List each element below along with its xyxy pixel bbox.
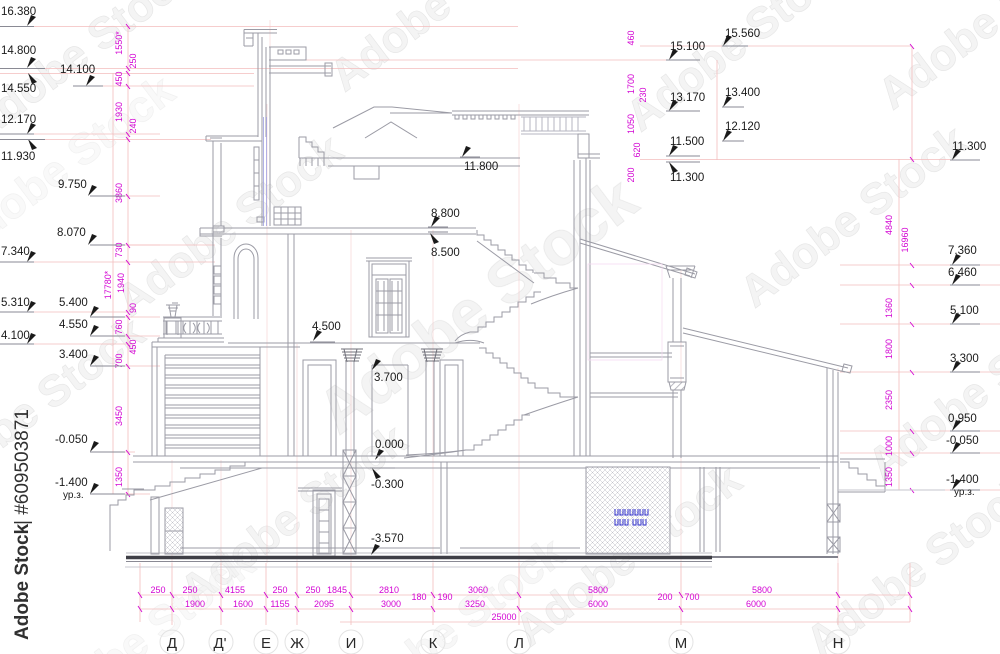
svg-text:12.170: 12.170: [1, 114, 36, 126]
svg-text:4840: 4840: [884, 215, 894, 235]
svg-text:13.170: 13.170: [670, 92, 705, 104]
svg-text:16960: 16960: [900, 227, 910, 252]
svg-text:0.950: 0.950: [948, 413, 977, 425]
svg-text:И: И: [346, 635, 357, 652]
svg-text:1700: 1700: [626, 74, 636, 94]
svg-text:5.100: 5.100: [950, 305, 979, 317]
svg-text:11.300: 11.300: [670, 172, 704, 184]
svg-text:4.500: 4.500: [312, 321, 341, 333]
svg-text:17780*: 17780*: [103, 270, 113, 299]
svg-text:15.100: 15.100: [670, 41, 705, 53]
svg-text:11.500: 11.500: [670, 136, 704, 148]
svg-text:1050: 1050: [626, 114, 636, 134]
svg-text:1930: 1930: [114, 102, 124, 122]
svg-text:3.400: 3.400: [59, 349, 88, 361]
svg-text:16.380: 16.380: [1, 6, 36, 18]
svg-text:-0.050: -0.050: [55, 434, 88, 446]
svg-text:| #609503871: | #609503871: [12, 409, 33, 525]
svg-text:6.460: 6.460: [948, 267, 977, 279]
svg-text:-1.400: -1.400: [946, 474, 979, 486]
svg-text:1155: 1155: [270, 599, 289, 609]
svg-text:7.360: 7.360: [948, 245, 977, 257]
svg-text:250: 250: [128, 53, 138, 68]
svg-text:1360: 1360: [884, 298, 894, 318]
svg-text:3250: 3250: [465, 599, 485, 609]
svg-text:700: 700: [684, 592, 699, 602]
svg-text:3.300: 3.300: [950, 353, 979, 365]
svg-text:5800: 5800: [588, 585, 608, 595]
svg-text:9.750: 9.750: [58, 179, 87, 191]
svg-text:-0.050: -0.050: [946, 435, 979, 447]
svg-text:12.120: 12.120: [725, 121, 760, 133]
svg-text:2095: 2095: [314, 599, 334, 609]
svg-text:3060: 3060: [468, 585, 488, 595]
svg-text:180: 180: [411, 592, 426, 602]
svg-text:Е: Е: [261, 635, 271, 652]
svg-text:460: 460: [626, 30, 636, 45]
svg-text:1845: 1845: [327, 585, 347, 595]
svg-text:-3.570: -3.570: [371, 533, 404, 545]
svg-text:14.550: 14.550: [1, 83, 36, 95]
svg-text:5.400: 5.400: [59, 297, 88, 309]
svg-text:190: 190: [437, 592, 452, 602]
svg-text:7.340: 7.340: [1, 246, 30, 258]
svg-text:ур.з.: ур.з.: [954, 487, 975, 498]
svg-text:М: М: [675, 635, 688, 652]
svg-text:8.800: 8.800: [431, 208, 460, 220]
svg-text:8.070: 8.070: [57, 227, 86, 239]
svg-text:Adobe Stock: Adobe Stock: [12, 523, 33, 640]
svg-text:4.100: 4.100: [1, 330, 30, 342]
svg-text:3000: 3000: [381, 599, 401, 609]
svg-text:6000: 6000: [588, 599, 608, 609]
svg-text:-0.300: -0.300: [371, 479, 404, 491]
svg-text:5.310: 5.310: [1, 297, 30, 309]
svg-text:250: 250: [150, 585, 165, 595]
svg-text:4155: 4155: [225, 585, 245, 595]
svg-text:11.930: 11.930: [1, 151, 35, 163]
svg-text:1550*: 1550*: [114, 31, 124, 55]
svg-text:Н: Н: [833, 635, 844, 652]
svg-text:2810: 2810: [379, 585, 399, 595]
svg-text:240: 240: [128, 118, 138, 133]
svg-text:8.500: 8.500: [431, 247, 460, 259]
svg-text:620: 620: [632, 142, 642, 157]
svg-text:11.800: 11.800: [464, 161, 498, 173]
svg-text:90: 90: [128, 303, 138, 313]
svg-text:13.400: 13.400: [725, 87, 760, 99]
svg-text:4.550: 4.550: [59, 319, 88, 331]
svg-text:0.000: 0.000: [375, 439, 404, 451]
svg-text:450: 450: [128, 339, 138, 354]
svg-text:Д: Д: [167, 635, 177, 652]
svg-text:14.100: 14.100: [60, 64, 95, 76]
svg-text:25000: 25000: [491, 612, 516, 622]
svg-text:5800: 5800: [752, 585, 772, 595]
svg-text:1900: 1900: [185, 599, 205, 609]
svg-text:1600: 1600: [233, 599, 253, 609]
svg-text:1000: 1000: [884, 436, 894, 456]
svg-text:1350: 1350: [114, 467, 124, 487]
svg-text:К: К: [429, 635, 438, 652]
svg-text:200: 200: [626, 167, 636, 182]
svg-text:1940: 1940: [116, 273, 126, 293]
svg-text:-1.400: -1.400: [55, 477, 88, 489]
svg-text:Ж: Ж: [290, 635, 304, 652]
svg-text:250: 250: [182, 585, 197, 595]
svg-text:3.700: 3.700: [374, 372, 403, 384]
svg-text:15.560: 15.560: [725, 28, 760, 40]
svg-text:6000: 6000: [746, 599, 766, 609]
svg-text:14.800: 14.800: [1, 45, 36, 57]
svg-text:250: 250: [305, 585, 320, 595]
svg-text:ур.з.: ур.з.: [63, 490, 84, 501]
svg-text:3860: 3860: [114, 183, 124, 203]
svg-text:11.300: 11.300: [952, 141, 986, 153]
svg-text:3450: 3450: [114, 406, 124, 426]
svg-text:450: 450: [114, 71, 124, 86]
svg-text:760: 760: [114, 319, 124, 334]
svg-text:Л: Л: [514, 635, 524, 652]
svg-text:200: 200: [657, 592, 672, 602]
svg-text:230: 230: [638, 87, 648, 102]
svg-text:Д': Д': [213, 635, 226, 652]
svg-text:1800: 1800: [884, 339, 894, 359]
svg-text:250: 250: [272, 585, 287, 595]
svg-text:2350: 2350: [884, 390, 894, 410]
